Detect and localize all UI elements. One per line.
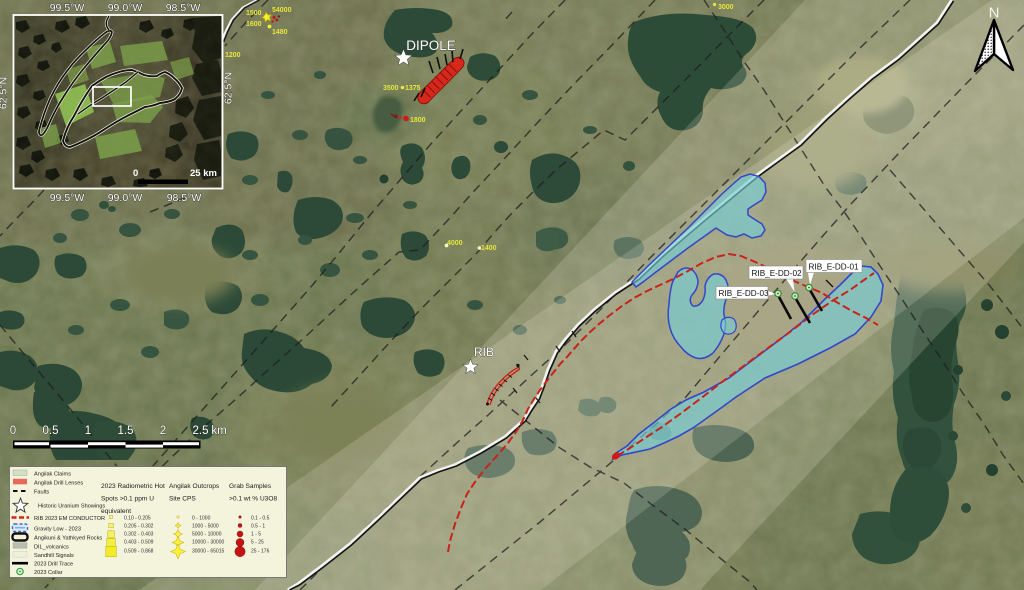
- svg-text:Faults: Faults: [34, 490, 49, 496]
- svg-text:Spots >0.1 ppm U: Spots >0.1 ppm U: [101, 496, 154, 503]
- svg-text:1500: 1500: [246, 10, 262, 17]
- svg-text:1 - 5: 1 - 5: [251, 532, 261, 538]
- svg-text:1800: 1800: [410, 117, 426, 124]
- svg-text:98.5°W: 98.5°W: [166, 2, 201, 14]
- svg-text:0.5: 0.5: [43, 425, 59, 437]
- svg-text:0.10 - 0.205: 0.10 - 0.205: [124, 516, 151, 522]
- svg-text:0: 0: [133, 168, 138, 179]
- svg-text:DIL_volcanics: DIL_volcanics: [34, 544, 69, 550]
- svg-text:98.5°W: 98.5°W: [167, 192, 202, 204]
- svg-text:0 - 1000: 0 - 1000: [192, 516, 211, 522]
- svg-text:5 - 25: 5 - 25: [251, 540, 264, 546]
- svg-text:1480: 1480: [272, 29, 288, 36]
- svg-text:Angilak Outcrops: Angilak Outcrops: [169, 483, 220, 490]
- svg-text:10000 - 30000: 10000 - 30000: [192, 540, 224, 546]
- svg-text:1400: 1400: [481, 245, 497, 252]
- svg-text:1600: 1600: [246, 21, 262, 28]
- svg-text:Angilak Drill Lenses: Angilak Drill Lenses: [34, 480, 83, 486]
- svg-text:DIPOLE: DIPOLE: [406, 38, 456, 53]
- svg-text:0: 0: [10, 425, 16, 437]
- svg-text:>0.1 wt % U3O8: >0.1 wt % U3O8: [229, 496, 278, 503]
- svg-text:54000: 54000: [272, 7, 292, 14]
- svg-text:Sandhill Signals: Sandhill Signals: [34, 553, 74, 559]
- svg-text:Gravity Low - 2023: Gravity Low - 2023: [34, 527, 81, 533]
- svg-text:2: 2: [160, 425, 166, 437]
- svg-text:1200: 1200: [225, 52, 241, 59]
- svg-text:5000 - 10000: 5000 - 10000: [192, 532, 222, 538]
- svg-text:2.5: 2.5: [193, 425, 209, 437]
- svg-text:3500: 3500: [383, 85, 399, 92]
- svg-text:99.0°W: 99.0°W: [108, 2, 143, 14]
- svg-text:62.5°N: 62.5°N: [0, 77, 10, 109]
- svg-text:2023 Drill Trace: 2023 Drill Trace: [34, 562, 73, 568]
- svg-text:99.0°W: 99.0°W: [108, 192, 143, 204]
- svg-text:RIB_E-DD-01: RIB_E-DD-01: [809, 263, 859, 272]
- svg-text:1: 1: [85, 425, 91, 437]
- svg-text:0.509 - 0.868: 0.509 - 0.868: [124, 549, 154, 555]
- svg-text:RIB: RIB: [474, 345, 494, 359]
- svg-text:30000 - 65015: 30000 - 65015: [192, 549, 224, 555]
- svg-text:62.5°N: 62.5°N: [223, 72, 235, 104]
- svg-text:99.5°W: 99.5°W: [50, 192, 85, 204]
- svg-text:2023 Radiometric Hot: 2023 Radiometric Hot: [101, 483, 165, 490]
- svg-text:Grab Samples: Grab Samples: [229, 483, 272, 490]
- svg-text:0.5 - 1: 0.5 - 1: [251, 524, 265, 530]
- svg-text:km: km: [211, 425, 226, 437]
- svg-text:RIB_E-DD-03: RIB_E-DD-03: [719, 289, 769, 298]
- svg-text:Historic Uranium Showings: Historic Uranium Showings: [38, 504, 105, 510]
- svg-text:1000 - 5000: 1000 - 5000: [192, 524, 219, 530]
- svg-text:25 - 176: 25 - 176: [251, 549, 270, 555]
- svg-text:0.205 - 0.302: 0.205 - 0.302: [124, 524, 154, 530]
- svg-text:1375: 1375: [405, 85, 421, 92]
- svg-text:RIB 2023 EM CONDUCTOR: RIB 2023 EM CONDUCTOR: [34, 516, 105, 522]
- svg-text:Angikuni & Yathkyed Rocks: Angikuni & Yathkyed Rocks: [34, 536, 102, 542]
- svg-text:3000: 3000: [718, 4, 734, 11]
- svg-text:0.1 - 0.5: 0.1 - 0.5: [251, 516, 270, 522]
- svg-text:Site CPS: Site CPS: [169, 496, 196, 503]
- svg-text:0.302 - 0.403: 0.302 - 0.403: [124, 532, 154, 538]
- svg-text:25 km: 25 km: [190, 168, 217, 179]
- svg-text:RIB_E-DD-02: RIB_E-DD-02: [752, 269, 802, 278]
- svg-text:Angilak Claims: Angilak Claims: [34, 472, 71, 478]
- svg-text:2023 Collar: 2023 Collar: [34, 570, 63, 576]
- svg-text:99.5°W: 99.5°W: [50, 2, 85, 14]
- svg-text:4000: 4000: [447, 240, 463, 247]
- svg-text:1.5: 1.5: [118, 425, 134, 437]
- svg-text:0.403 - 0.509: 0.403 - 0.509: [124, 540, 154, 546]
- svg-text:equivalent: equivalent: [101, 508, 131, 515]
